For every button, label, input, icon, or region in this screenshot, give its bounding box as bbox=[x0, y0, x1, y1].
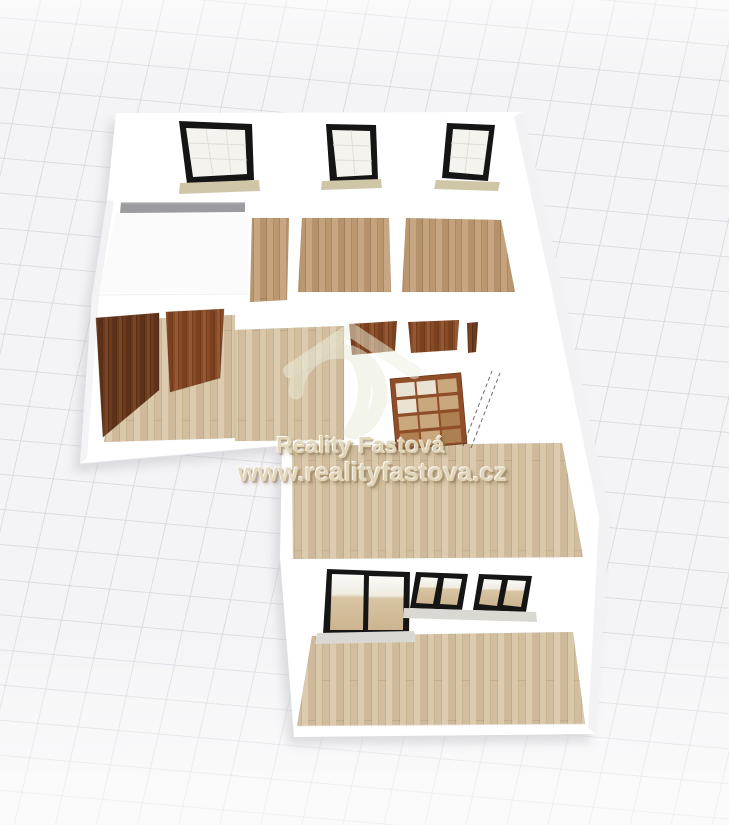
back-window-2 bbox=[321, 124, 382, 190]
balcony-door-glass-right bbox=[368, 576, 404, 630]
hallway-door-2 bbox=[166, 309, 224, 392]
glazed-door bbox=[390, 373, 467, 450]
interior-door-top-2 bbox=[408, 320, 459, 353]
corridor-strip-floor bbox=[250, 218, 289, 302]
room-3-floor bbox=[402, 218, 515, 292]
balcony-window-2 bbox=[473, 574, 532, 612]
balcony-door-glass-left bbox=[330, 574, 364, 630]
balcony-window-1 bbox=[410, 572, 468, 610]
floorplan-scene: Reality Fastová www.realityfastova.cz bbox=[0, 0, 729, 825]
balcony-door bbox=[315, 569, 416, 644]
balcony-floor bbox=[297, 632, 585, 726]
bathroom-floor bbox=[99, 212, 248, 293]
floorplan-3d-render bbox=[0, 0, 729, 825]
window-glass bbox=[186, 128, 247, 177]
balcony-door-threshold bbox=[315, 631, 416, 644]
back-window-1 bbox=[179, 121, 260, 194]
room-2-floor bbox=[298, 218, 391, 292]
kitchen-counter bbox=[120, 202, 245, 213]
living-room-floor bbox=[292, 443, 583, 559]
